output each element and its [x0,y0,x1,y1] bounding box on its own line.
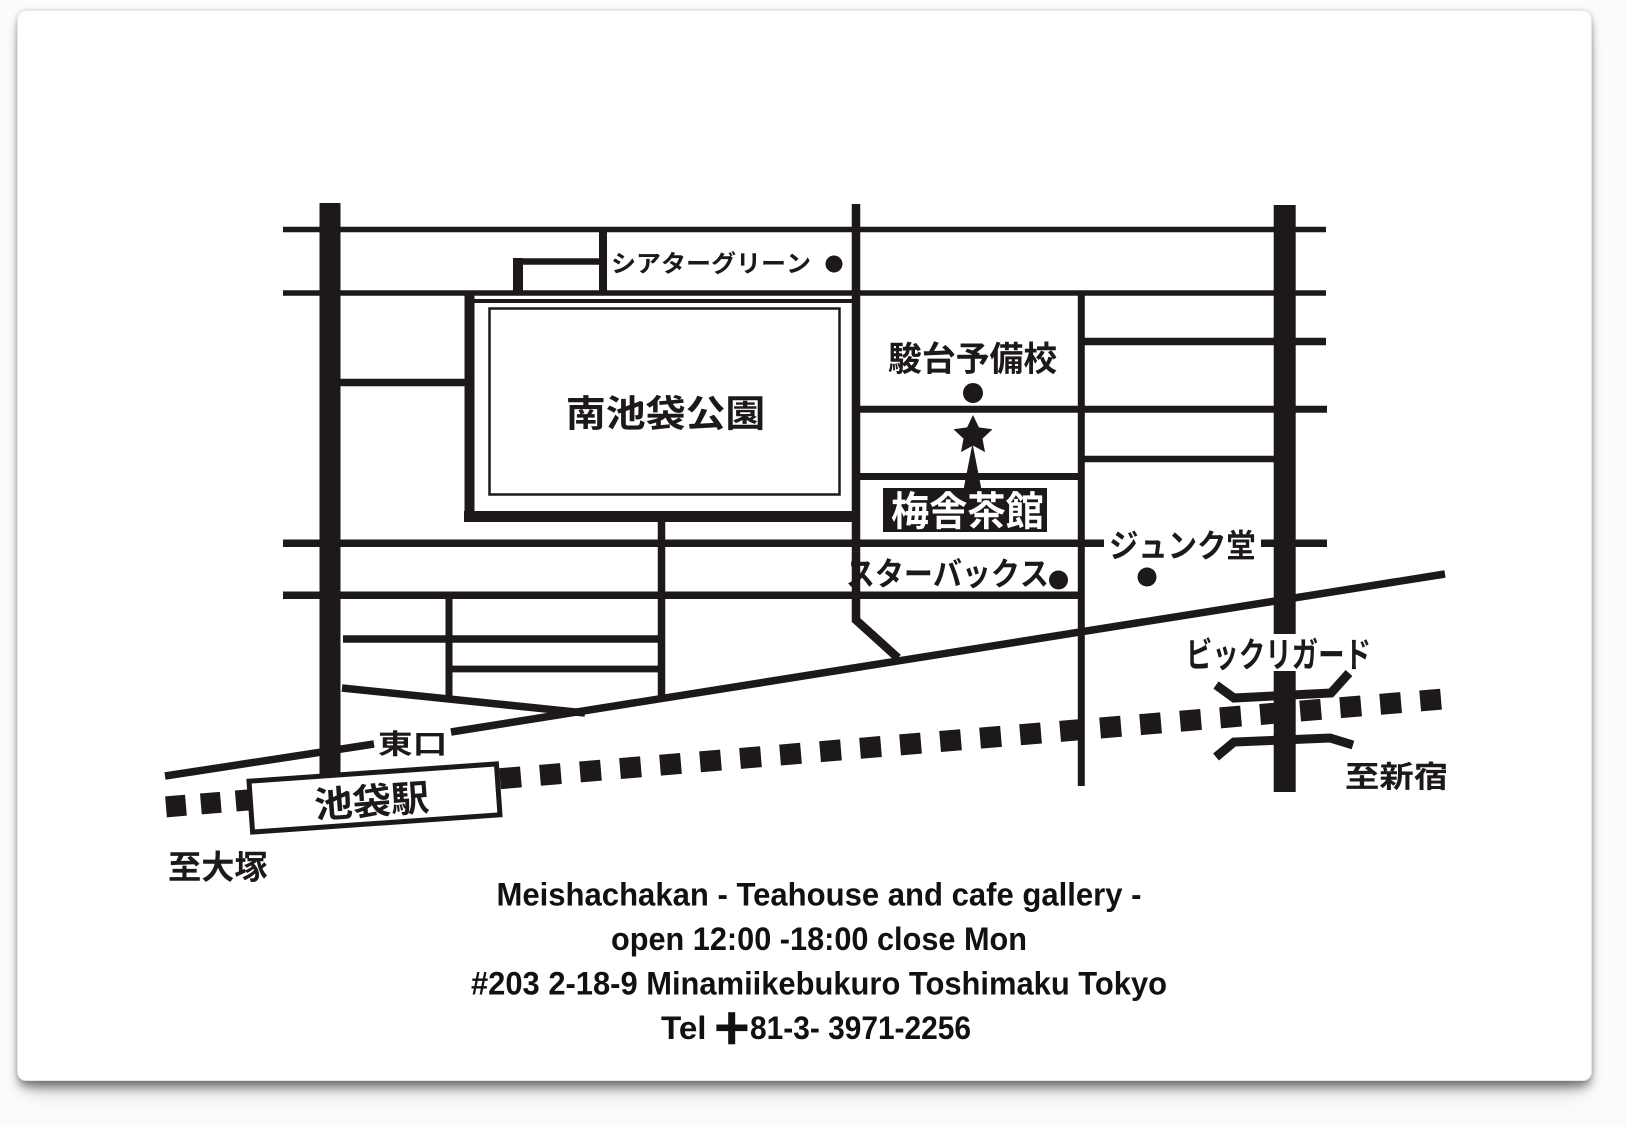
svg-text:Meishachakan - Teahouse and ca: Meishachakan - Teahouse and cafe gallery… [497,877,1142,913]
svg-text:open 12:00 -18:00 close Mon: open 12:00 -18:00 close Mon [611,921,1027,957]
svg-text:#203 2-18-9 Minamiikebukuro To: #203 2-18-9 Minamiikebukuro Toshimaku To… [471,966,1167,1002]
svg-text:Tel: Tel [661,1010,707,1046]
svg-text:81-3- 3971-2256: 81-3- 3971-2256 [750,1010,971,1046]
